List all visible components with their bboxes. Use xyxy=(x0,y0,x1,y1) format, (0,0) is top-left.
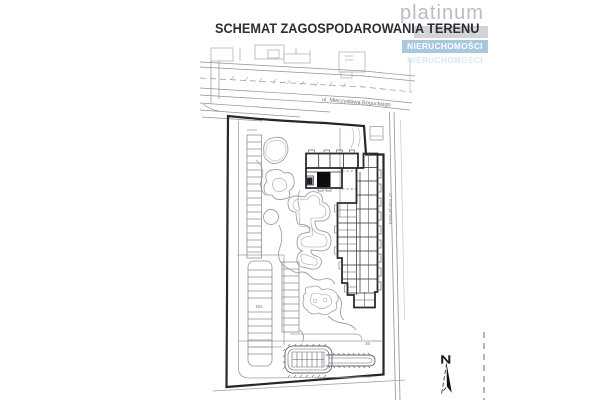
svg-text:36: 36 xyxy=(365,341,371,346)
svg-text:DN: DN xyxy=(256,304,263,309)
svg-text:ul. Mieczysława Boguckiego: ul. Mieczysława Boguckiego xyxy=(322,97,391,108)
svg-text:ul. Kampinoska: ul. Kampinoska xyxy=(388,193,393,225)
